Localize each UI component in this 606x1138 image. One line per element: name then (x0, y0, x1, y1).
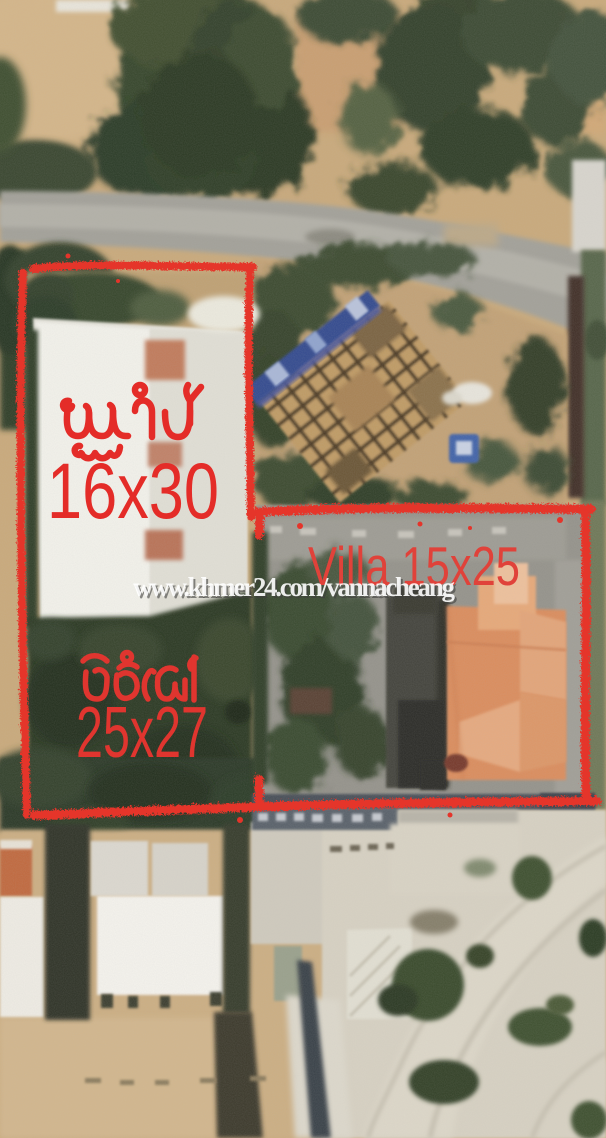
svg-text:www.khmer24.com/vannacheang: www.khmer24.com/vannacheang (133, 572, 456, 602)
svg-text:25x27: 25x27 (76, 693, 208, 773)
svg-text:16x30: 16x30 (47, 446, 219, 535)
